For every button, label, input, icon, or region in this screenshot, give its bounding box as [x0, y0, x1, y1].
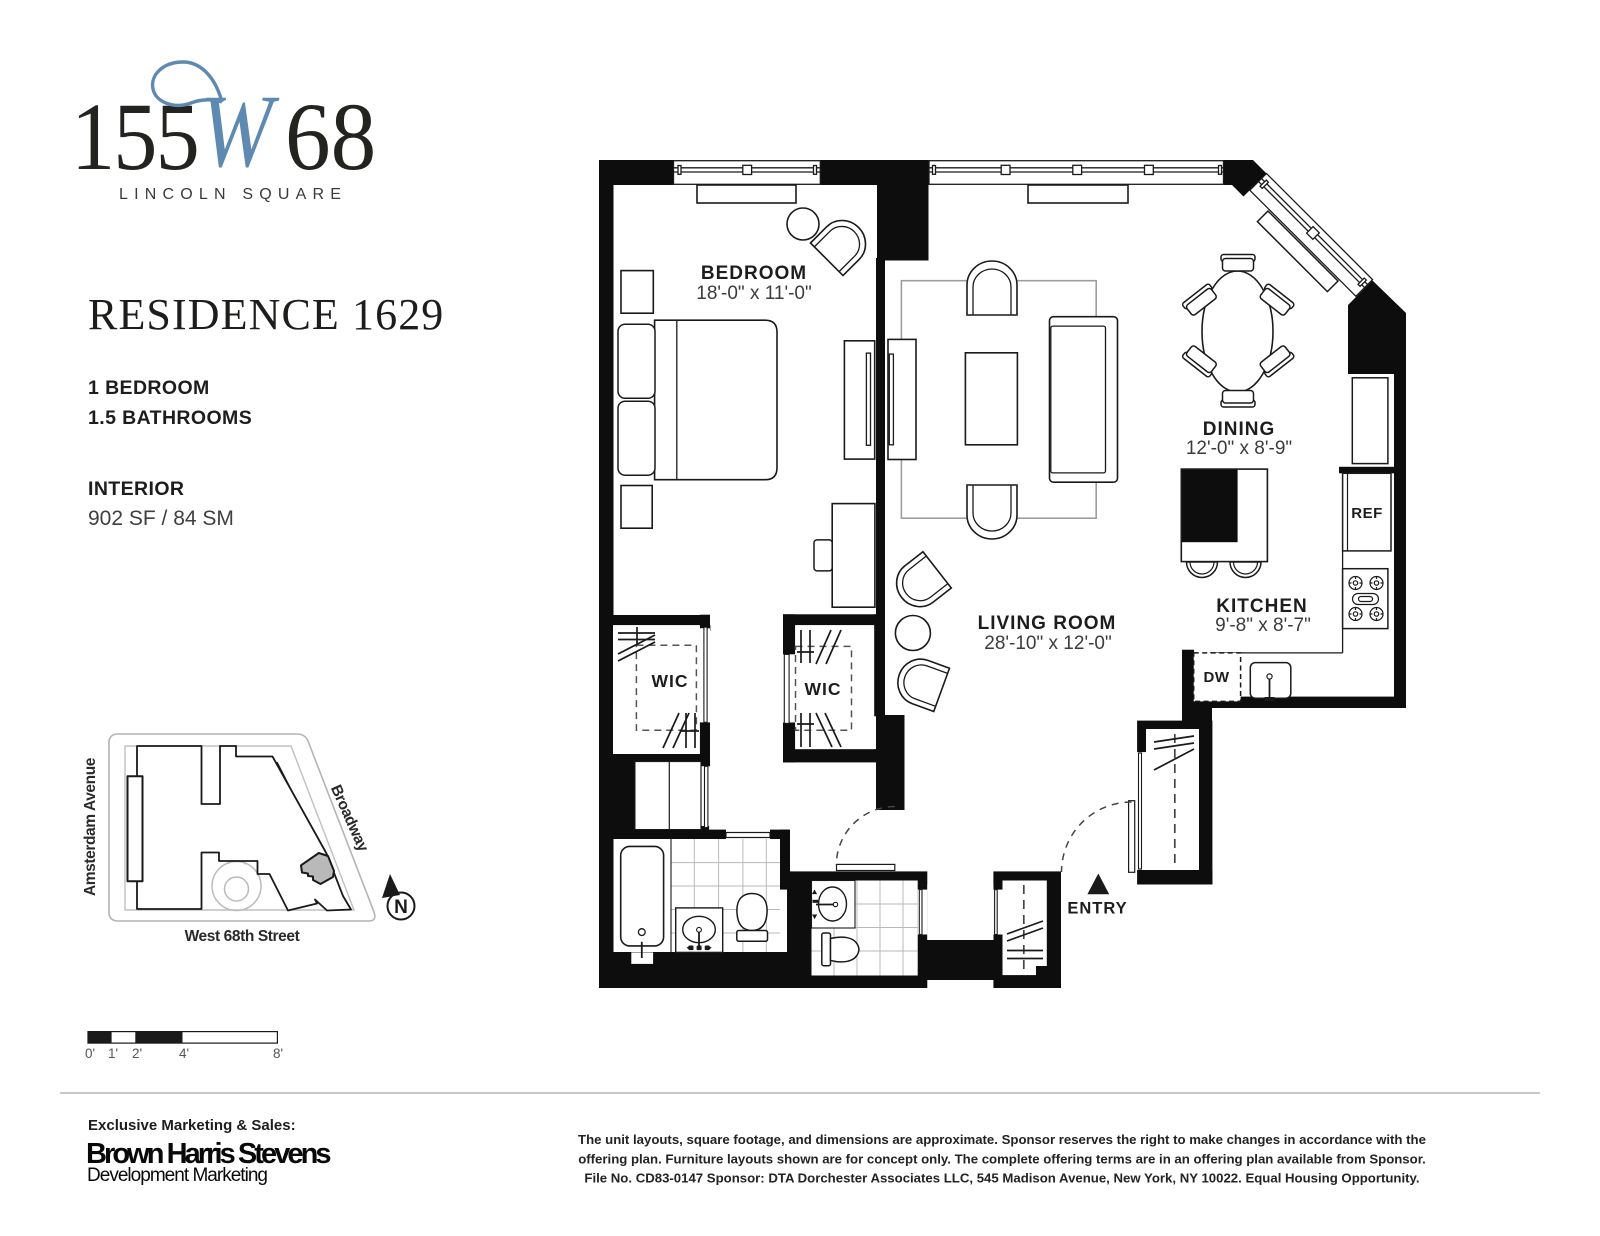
- svg-text:W: W: [200, 73, 280, 189]
- svg-text:902 SF / 84 SM: 902 SF / 84 SM: [88, 507, 234, 530]
- svg-text:18'-0" x 11'-0": 18'-0" x 11'-0": [696, 283, 811, 304]
- svg-text:File No. CD83-0147 Sponsor: DT: File No. CD83-0147 Sponsor: DTA Dorchest…: [584, 1171, 1419, 1186]
- svg-text:N: N: [394, 897, 408, 918]
- svg-text:28'-10" x 12'-0": 28'-10" x 12'-0": [984, 633, 1111, 654]
- svg-text:1': 1': [108, 1046, 118, 1061]
- svg-text:DW: DW: [1204, 669, 1230, 686]
- svg-text:KITCHEN: KITCHEN: [1216, 596, 1307, 617]
- svg-text:INTERIOR: INTERIOR: [88, 478, 184, 500]
- svg-text:ENTRY: ENTRY: [1067, 900, 1127, 918]
- svg-text:Development Marketing: Development Marketing: [87, 1165, 268, 1186]
- svg-text:8': 8': [273, 1046, 283, 1061]
- svg-text:West 68th Street: West 68th Street: [185, 928, 300, 945]
- svg-text:1 BEDROOM: 1 BEDROOM: [88, 377, 210, 399]
- svg-text:WIC: WIC: [804, 679, 841, 699]
- svg-text:Exclusive Marketing & Sales:: Exclusive Marketing & Sales:: [88, 1117, 296, 1134]
- svg-text:offering plan. Furniture layou: offering plan. Furniture layouts shown a…: [578, 1152, 1426, 1167]
- svg-text:12'-0" x 8'-9": 12'-0" x 8'-9": [1186, 438, 1292, 459]
- svg-text:REF: REF: [1351, 505, 1383, 522]
- svg-text:9'-8" x 8'-7": 9'-8" x 8'-7": [1215, 615, 1311, 636]
- svg-text:WIC: WIC: [651, 671, 688, 691]
- svg-text:2': 2': [132, 1046, 142, 1061]
- svg-text:DINING: DINING: [1203, 419, 1276, 440]
- svg-text:Amsterdam Avenue: Amsterdam Avenue: [82, 757, 99, 896]
- svg-text:1.5 BATHROOMS: 1.5 BATHROOMS: [88, 407, 252, 429]
- svg-text:BEDROOM: BEDROOM: [701, 263, 807, 284]
- svg-text:RESIDENCE 1629: RESIDENCE 1629: [88, 290, 444, 339]
- svg-text:LIVING ROOM: LIVING ROOM: [978, 613, 1117, 634]
- svg-text:The unit layouts, square foota: The unit layouts, square footage, and di…: [578, 1132, 1426, 1147]
- svg-text:LINCOLN SQUARE: LINCOLN SQUARE: [119, 186, 347, 203]
- svg-text:68: 68: [285, 85, 376, 191]
- svg-text:0': 0': [85, 1046, 95, 1061]
- svg-text:4': 4': [179, 1046, 189, 1061]
- svg-text:155: 155: [71, 84, 198, 190]
